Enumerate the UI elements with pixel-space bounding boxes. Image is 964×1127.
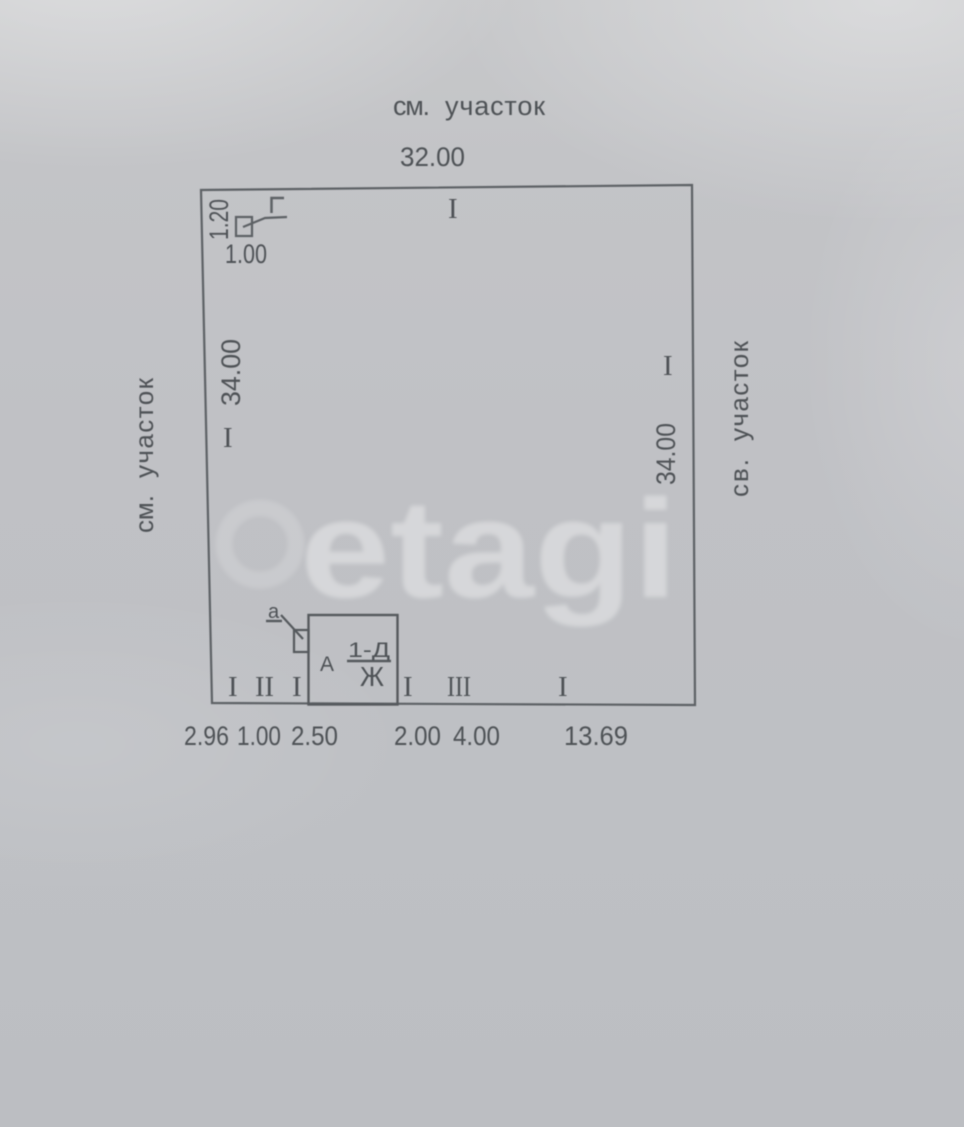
svg-text:etagi: etagi — [300, 470, 678, 627]
svg-text:III: III — [447, 671, 471, 703]
svg-text:см.: см. — [129, 495, 159, 533]
svg-text:участок: участок — [724, 340, 754, 441]
svg-text:32.00: 32.00 — [400, 142, 465, 172]
svg-text:2.50: 2.50 — [291, 721, 338, 751]
svg-text:1-Д: 1-Д — [348, 639, 390, 662]
svg-text:I: I — [228, 671, 238, 703]
svg-text:I: I — [558, 671, 568, 703]
svg-text:Ж: Ж — [360, 661, 384, 692]
svg-text:II: II — [255, 671, 274, 703]
svg-text:34.00: 34.00 — [216, 339, 246, 406]
svg-text:1.00: 1.00 — [225, 239, 267, 269]
svg-text:1.00: 1.00 — [237, 721, 281, 751]
svg-text:участок: участок — [129, 377, 159, 478]
svg-text:I: I — [448, 193, 458, 225]
svg-text:13.69: 13.69 — [564, 721, 628, 751]
svg-text:I: I — [663, 350, 673, 382]
svg-text:I: I — [223, 422, 233, 454]
svg-text:2.00: 2.00 — [394, 721, 441, 751]
svg-text:а: а — [268, 601, 280, 623]
svg-text:4.00: 4.00 — [453, 721, 500, 751]
svg-text:34.00: 34.00 — [651, 423, 681, 485]
svg-text:А: А — [320, 653, 334, 676]
svg-text:2.96: 2.96 — [184, 721, 229, 751]
svg-text:I: I — [292, 671, 302, 703]
svg-text:1.20: 1.20 — [204, 199, 234, 240]
svg-text:см.: см. — [393, 91, 430, 121]
svg-text:участок: участок — [445, 91, 545, 121]
svg-text:I: I — [403, 671, 413, 703]
svg-text:св.: св. — [724, 459, 754, 497]
